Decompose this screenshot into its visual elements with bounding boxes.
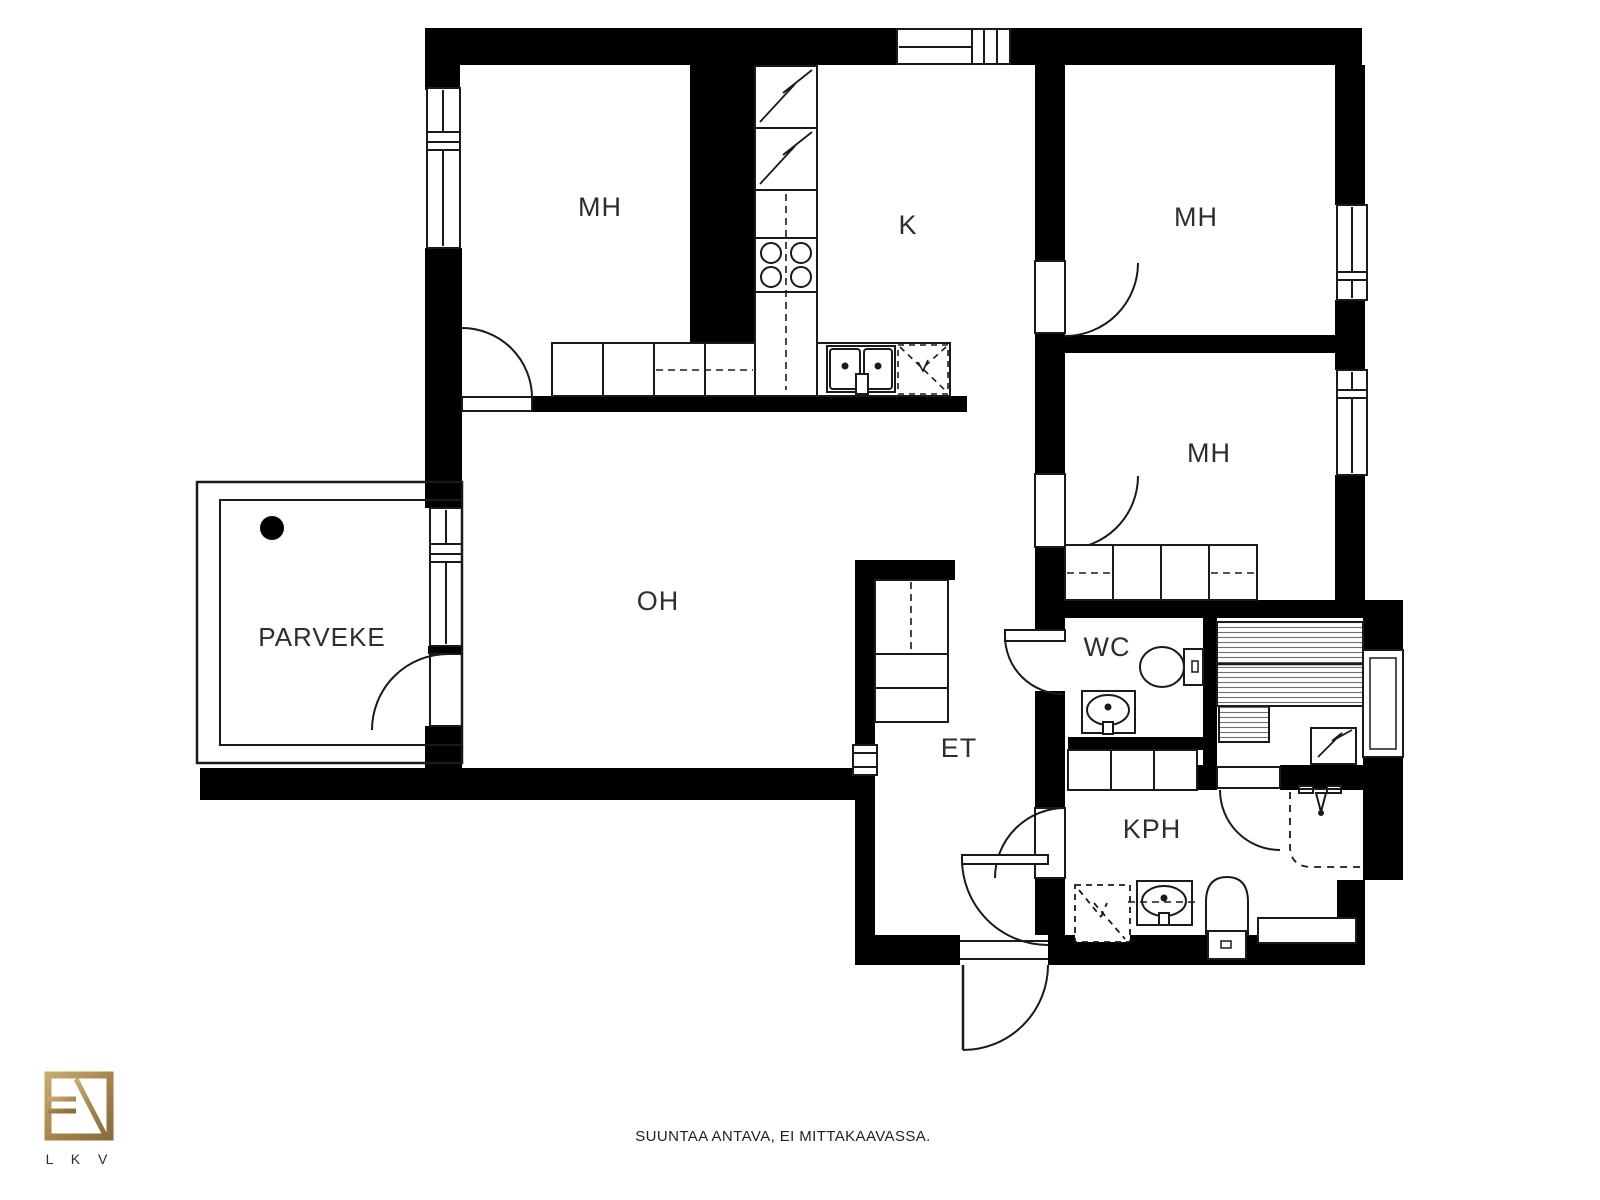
window-bedroom-top-left — [427, 88, 460, 248]
room-label-mh-top-left: MH — [578, 192, 622, 222]
kitchen-fixtures — [755, 66, 950, 396]
window-kitchen — [897, 29, 1010, 64]
window-bedroom-mid-right — [1337, 370, 1367, 475]
window-sauna — [1363, 650, 1403, 757]
kitchen-sink-icon — [827, 346, 895, 394]
wardrobe-bedroom-mid-right — [1065, 545, 1257, 600]
room-label-bathroom: KPH — [1123, 814, 1182, 844]
bathroom-fixtures — [1075, 786, 1363, 959]
floor-plan-page: MH K MH MH OH PARVEKE WC ET KPH L K V SU… — [0, 0, 1600, 1200]
window-balcony-wall — [430, 508, 462, 646]
logo-n-diagonal — [76, 1079, 105, 1135]
room-label-mh-mid-right: MH — [1187, 438, 1231, 468]
bathroom-bench — [1258, 918, 1356, 943]
door-wc — [1005, 630, 1065, 694]
door-bathroom — [995, 808, 1065, 878]
sauna — [1217, 622, 1363, 764]
lkv-logo: L K V — [46, 1075, 115, 1167]
shower-head-icon — [1299, 786, 1341, 815]
disclaimer-text: SUUNTAA ANTAVA, EI MITTAKAAVASSA. — [635, 1128, 930, 1145]
washing-machine-reservation — [1075, 885, 1130, 942]
logo-e-bars — [48, 1099, 76, 1111]
room-label-hall: ET — [941, 733, 978, 763]
fridge-icon — [755, 66, 817, 128]
floor-plan: MH K MH MH OH PARVEKE WC ET KPH L K V SU… — [0, 0, 1600, 1200]
washbasin-wc-icon — [1082, 691, 1135, 734]
wardrobe-bedroom-top-left — [552, 343, 755, 396]
door-bedroom-top-right — [1035, 261, 1138, 336]
balcony-drain-icon — [260, 516, 284, 540]
room-label-wc: WC — [1084, 632, 1131, 662]
door-sauna — [1217, 767, 1280, 850]
freezer-icon — [755, 128, 817, 190]
door-bedroom-top-left — [462, 328, 532, 411]
room-label-balcony: PARVEKE — [258, 622, 385, 652]
closet-hall — [875, 580, 948, 722]
washbasin-bathroom-icon — [1128, 881, 1200, 925]
shower-area — [1290, 786, 1363, 867]
toilet-bathroom-icon — [1206, 877, 1248, 959]
door-balcony — [372, 654, 462, 730]
dishwasher-icon — [898, 345, 948, 394]
window-bedroom-top-right — [1337, 205, 1367, 300]
sauna-step — [1219, 706, 1269, 742]
closet-bathroom-entry — [1068, 750, 1197, 790]
hatch-hall-wall — [853, 745, 877, 775]
door-bedroom-mid-right — [1035, 474, 1138, 549]
door-entrance — [960, 855, 1048, 1050]
room-label-living-room: OH — [637, 586, 680, 616]
toilet-wc-icon — [1140, 647, 1203, 687]
room-label-kitchen: K — [898, 210, 917, 240]
lkv-caption: L K V — [46, 1151, 115, 1167]
room-label-mh-top-right: MH — [1174, 202, 1218, 232]
sauna-stove-icon — [1311, 728, 1356, 764]
